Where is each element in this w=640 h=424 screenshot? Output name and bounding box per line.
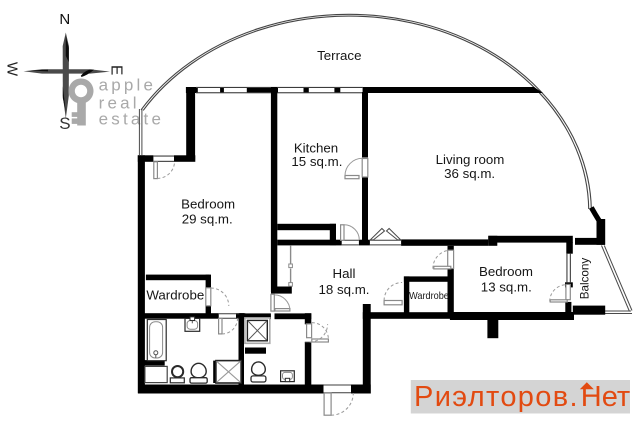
svg-text:Риэлторов.: Риэлторов. [414,381,579,413]
svg-text:N: N [59,11,70,28]
svg-text:Bedroom: Bedroom [479,264,533,279]
svg-text:Balcony: Balcony [579,258,592,300]
svg-text:Wardrobe: Wardrobe [409,291,449,302]
svg-text:estate: estate [99,110,165,129]
svg-text:W: W [3,62,20,77]
svg-text:S: S [59,114,70,133]
svg-text:Living room: Living room [436,152,505,167]
svg-text:E: E [107,65,124,75]
svg-text:Terrace: Terrace [317,48,361,63]
svg-text:Bedroom: Bedroom [181,196,235,211]
svg-text:15 sq.m.: 15 sq.m. [291,154,342,169]
svg-text:Wardrobe: Wardrobe [146,288,204,303]
svg-text:13 sq.m.: 13 sq.m. [481,280,532,295]
svg-text:18 sq.m.: 18 sq.m. [319,282,370,297]
svg-text:29 sq.m.: 29 sq.m. [182,211,233,226]
svg-text:36 sq.m.: 36 sq.m. [444,166,495,181]
svg-text:Kitchen: Kitchen [294,140,338,155]
svg-text:Hall: Hall [333,266,356,281]
svg-text:apple: apple [99,75,157,94]
